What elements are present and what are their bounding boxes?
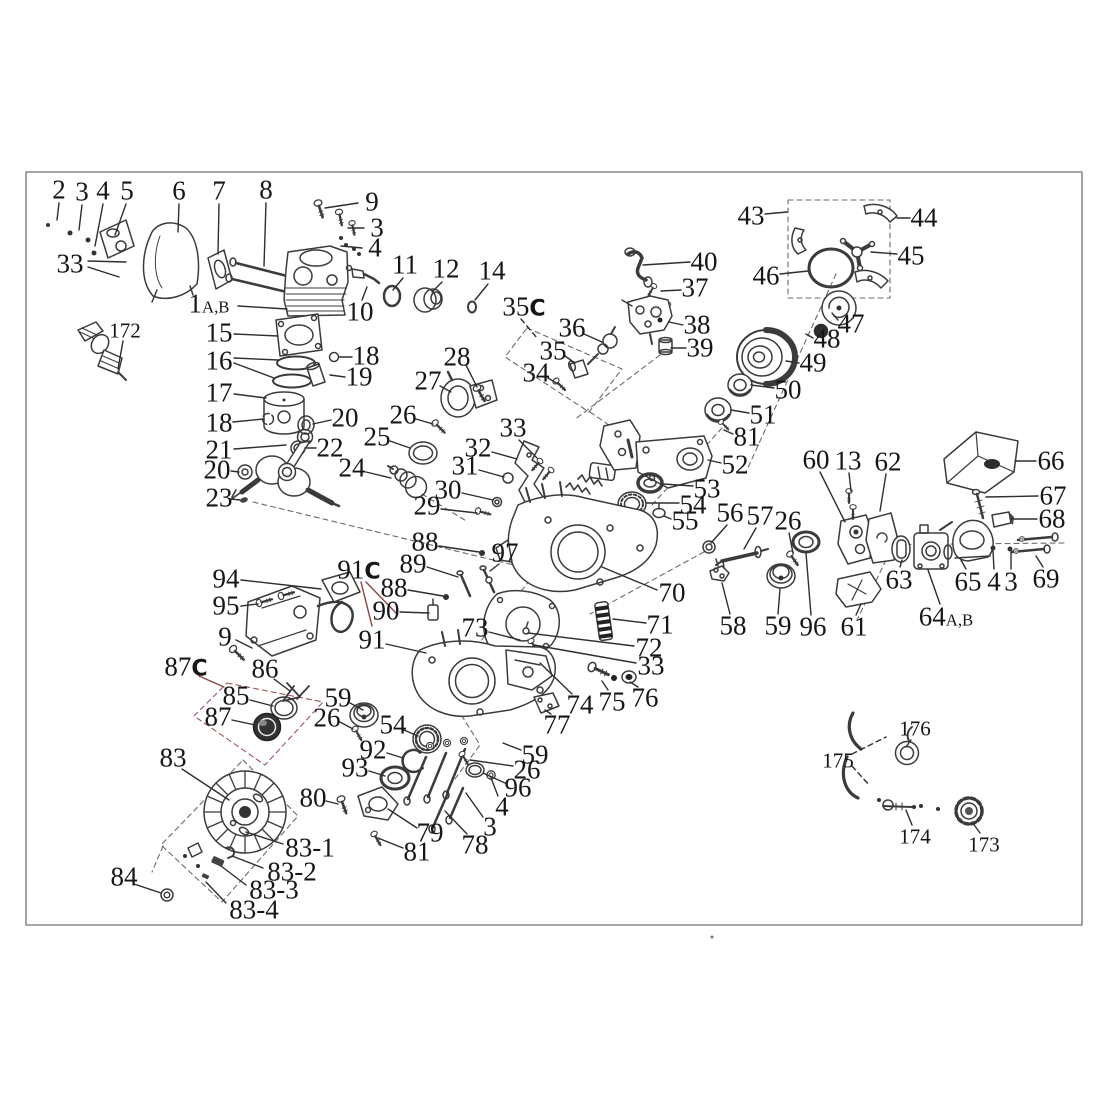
part-screw-67	[973, 490, 986, 519]
part-filter-cover-66	[944, 432, 1018, 493]
part-decomp-valve-172	[78, 322, 126, 380]
part-nut-31	[503, 473, 513, 483]
part-clip-14	[468, 302, 476, 313]
part-base-gasket-15	[276, 314, 322, 356]
part-grommet-39	[659, 338, 672, 355]
part-ring-46	[809, 249, 853, 287]
part-pump-gear-173	[956, 798, 982, 824]
part-plate-79	[358, 787, 398, 820]
part-seal-ring-25	[409, 442, 437, 464]
part-fuel-elbow-40	[625, 248, 652, 287]
part-screws-88-89-90	[428, 550, 485, 620]
part-seal-93	[381, 767, 409, 789]
parts-diagram-page: 234567893433111012141A,B1721516171819182…	[0, 0, 1100, 1100]
part-spark-plug-10	[347, 266, 380, 284]
part-washer-84	[161, 889, 173, 901]
part-pump-plate-52	[636, 436, 712, 488]
stray-dot	[711, 936, 714, 939]
diagram-canvas	[0, 0, 1100, 1100]
part-bar-plate-98	[600, 420, 640, 470]
part-wrist-pin-19	[306, 361, 325, 386]
part-muffler-cover-6	[143, 223, 198, 302]
part-pulley-59l	[350, 703, 378, 727]
part-pawl-44	[864, 204, 897, 222]
part-oil-cap-87	[254, 714, 281, 741]
part-oring-11	[384, 286, 400, 306]
part-ignition-coil-94	[246, 572, 360, 656]
part-shaft-174	[883, 800, 916, 810]
part-muffler-bolts-8	[226, 258, 291, 293]
part-nut-30	[493, 498, 502, 507]
part-air-filter-65	[953, 520, 993, 561]
part-worm-plate-61	[836, 572, 881, 607]
part-buffer-71	[595, 601, 613, 640]
part-oring-96b	[466, 763, 484, 777]
part-key-23	[239, 496, 248, 503]
part-fuel-filter-35	[567, 360, 588, 378]
part-bushing-12	[414, 288, 442, 312]
part-screw-26m	[431, 419, 448, 436]
part-valve-plate-5	[100, 220, 134, 258]
part-pawl-left	[792, 228, 806, 254]
part-cap-48	[815, 325, 828, 338]
fuel-filter-group-box	[505, 328, 622, 412]
part-drum-51	[705, 398, 731, 422]
part-carburetor-64	[914, 522, 952, 569]
part-screws-13	[846, 489, 856, 519]
part-oiler-75	[587, 661, 617, 681]
part-gasket-62	[866, 513, 897, 563]
part-wire-grommet-36	[588, 327, 617, 364]
part-rope-rotor-47	[822, 291, 856, 325]
part-pawl-bottom	[855, 270, 888, 288]
part-cap-76	[622, 671, 636, 683]
part-cylinder-1ab	[284, 246, 348, 316]
part-screw-81b	[370, 830, 384, 847]
part-small-screws-topleft	[46, 223, 97, 256]
part-nut-56	[703, 541, 715, 553]
part-pin-clip-18r	[330, 353, 339, 362]
part-pump-body-27	[441, 372, 497, 417]
part-screw-9l	[228, 644, 246, 662]
part-exhaust-gasket-7	[208, 250, 232, 289]
part-case-bolts	[404, 737, 468, 833]
part-oil-seal-96r	[793, 532, 819, 552]
part-intake-boot-24	[388, 466, 427, 498]
part-bracket-77	[534, 693, 559, 713]
part-wire-clip-86	[283, 683, 309, 701]
part-intake-flange-63	[892, 536, 910, 562]
part-screw-34	[552, 377, 568, 393]
part-pulley-59r	[767, 564, 795, 588]
part-washer-20l	[238, 465, 252, 479]
part-bearing-50	[728, 374, 752, 396]
part-oil-lines-175	[843, 713, 861, 798]
part-cap-55	[653, 504, 665, 518]
